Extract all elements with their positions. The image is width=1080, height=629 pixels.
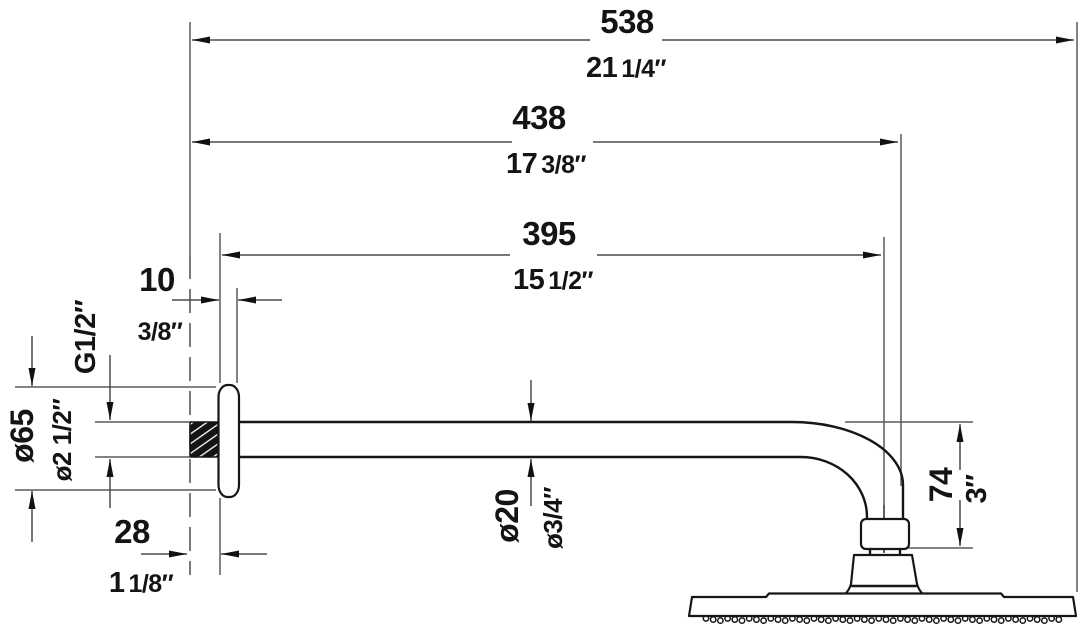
arm-outer-contour [239,422,903,519]
shower-arm-dimension-drawing: 538 211/4″ 438 173/8″ 395 151/2″ 10 3/8″… [0,0,1080,629]
wall-thread-section [190,422,218,457]
spray-dot [927,617,932,622]
spray-dot [819,617,824,622]
dim-65-mm-label: ø65 [4,409,40,463]
head-mount-cone [844,555,924,595]
spray-dot [934,618,939,623]
spray-dot [905,617,910,622]
spray-dot [732,617,737,622]
spray-dot [862,617,867,622]
connection-nut [861,519,909,549]
spray-dot [977,618,982,623]
spray-dot [1035,617,1040,622]
dim-395-inch-frac: 1/2″ [548,267,593,295]
dim-28-inch-frac: 1/8″ [128,570,173,598]
dim-10-inch-label: 3/8″ [138,318,183,346]
fixture-geometry [190,385,1076,623]
spray-dot [739,618,744,623]
dim-395-inch-whole: 15 [513,264,545,296]
spray-dot [804,618,809,623]
spray-dot [869,618,874,623]
dim-395-inch-label: 151/2″ [513,264,594,296]
shower-head-plate [689,594,1076,617]
wall-flange [219,385,240,497]
spray-dot [999,618,1004,623]
technical-drawing-page: 538 211/4″ 438 173/8″ 395 151/2″ 10 3/8″… [0,0,1080,629]
spray-dot [775,617,780,622]
spray-dot [754,617,759,622]
dim-10-mm-label: 10 [139,261,175,298]
spray-dot [840,617,845,622]
dim-438-mm-label: 438 [512,99,566,136]
spray-dot [1042,618,1047,623]
dim-438-inch-frac: 3/8″ [541,151,586,179]
spray-dot [891,618,896,623]
spray-dot [711,617,716,622]
dim-538-inch-frac: 1/4″ [621,55,666,83]
spray-dot [783,618,788,623]
dim-538-mm-label: 538 [600,3,654,40]
dim-20-inch-label: ø3/4″ [538,487,568,549]
dim-28-inch-whole: 1 [109,567,125,599]
spray-dot [1020,618,1025,623]
spray-dot [883,617,888,622]
spray-dot [761,618,766,623]
dim-438-inch-label: 173/8″ [506,148,587,180]
spray-dot [797,617,802,622]
spray-dot [1013,617,1018,622]
spray-dot [847,618,852,623]
spray-dot [826,618,831,623]
dim-74-mm-label: 74 [923,467,959,502]
thread-size-label: G1/2″ [70,299,102,374]
dim-28-mm-label: 28 [114,513,150,550]
spray-dot [718,618,723,623]
spray-dot [970,617,975,622]
spray-dot [955,618,960,623]
dim-20-mm-label: ø20 [489,489,525,543]
dim-395-mm-label: 395 [522,215,576,252]
dimension-labels: 538 211/4″ 438 173/8″ 395 151/2″ 10 3/8″… [4,3,993,599]
dim-438-inch-whole: 17 [506,148,537,180]
dim-538-inch-label: 211/4″ [586,52,667,84]
dim-65-inch-label: ø2 1/2″ [47,399,77,482]
spray-dot [1056,617,1061,622]
dim-538-inch-whole: 21 [586,52,618,84]
dim-28-inch-label: 11/8″ [109,567,174,599]
spray-dot [991,617,996,622]
spray-dot [948,617,953,622]
dim-74-inch-label: 3″ [961,474,993,504]
spray-dot [912,618,917,623]
